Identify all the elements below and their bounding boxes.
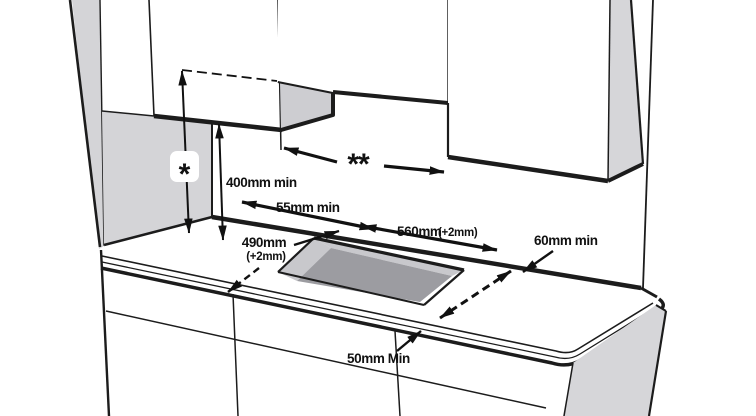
dim-label-55mm-min: 55mm min	[276, 200, 340, 215]
wall-cabinet-right	[448, 0, 643, 181]
dim-label-50mm-min: 50mm Min	[347, 351, 410, 366]
star-marker: *	[179, 158, 191, 191]
diagram-canvas: * 400mm min ** 55mm min 560mm (+2mm) 490…	[0, 0, 756, 416]
dim-label-60mm-min: 60mm min	[534, 233, 598, 248]
installation-diagram: * 400mm min ** 55mm min 560mm (+2mm) 490…	[0, 0, 756, 416]
double-star-marker: **	[347, 148, 370, 181]
dim-label-490mm-tolerance: (+2mm)	[246, 251, 286, 263]
dim-label-560mm-tolerance: (+2mm)	[438, 227, 478, 239]
dim-label-490mm: 490mm	[242, 235, 287, 250]
dim-label-400mm-min: 400mm min	[226, 175, 297, 190]
dim-label-560mm: 560mm	[397, 224, 442, 239]
